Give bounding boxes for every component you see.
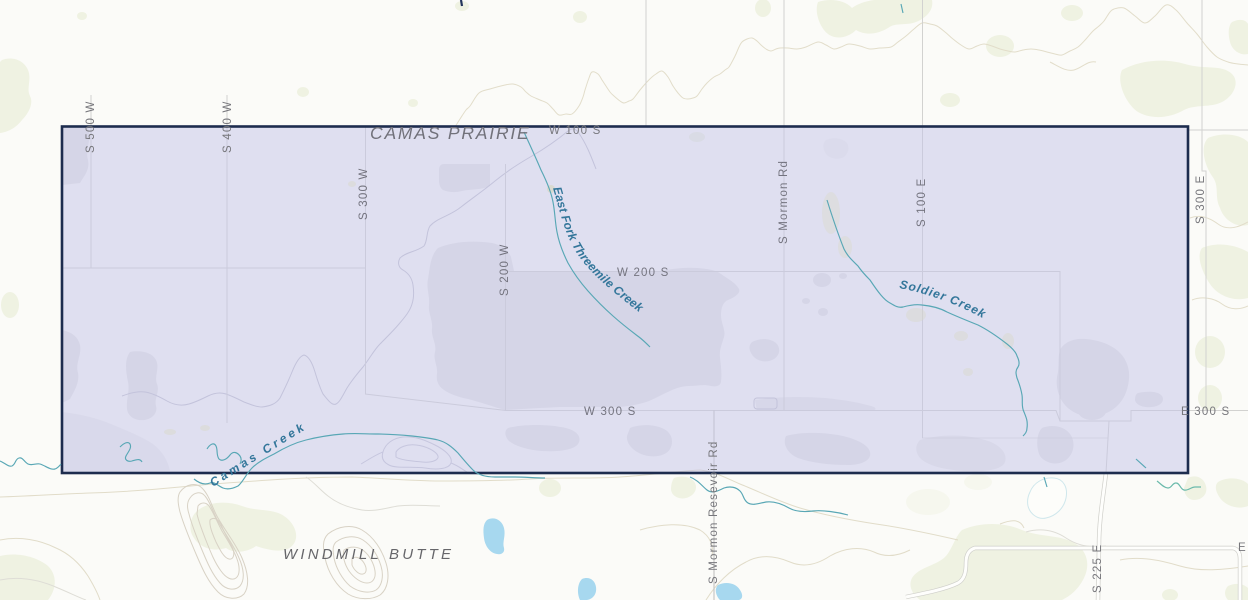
svg-text:S Mormon Rd: S Mormon Rd	[778, 160, 790, 244]
svg-text:WINDMILL BUTTE: WINDMILL BUTTE	[283, 546, 454, 563]
svg-text:S 300 E: S 300 E	[1195, 175, 1207, 224]
svg-text:S 200 W: S 200 W	[499, 243, 511, 296]
svg-text:S 100 E: S 100 E	[916, 178, 928, 227]
svg-text:S 400 W: S 400 W	[222, 100, 234, 153]
svg-text:S 500 W: S 500 W	[85, 100, 97, 153]
svg-text:S Mormon Resevoir Rd: S Mormon Resevoir Rd	[708, 440, 720, 584]
svg-text:W 100 S: W 100 S	[549, 125, 602, 137]
svg-text:S 225 E: S 225 E	[1092, 544, 1104, 593]
svg-text:S 300 W: S 300 W	[358, 167, 370, 220]
svg-text:W 300 S: W 300 S	[584, 406, 637, 418]
svg-text:E 300 S: E 300 S	[1181, 406, 1230, 418]
svg-text:CAMAS PRAIRIE: CAMAS PRAIRIE	[370, 123, 531, 143]
svg-text:E: E	[1238, 542, 1247, 554]
svg-text:W 200 S: W 200 S	[617, 267, 670, 279]
